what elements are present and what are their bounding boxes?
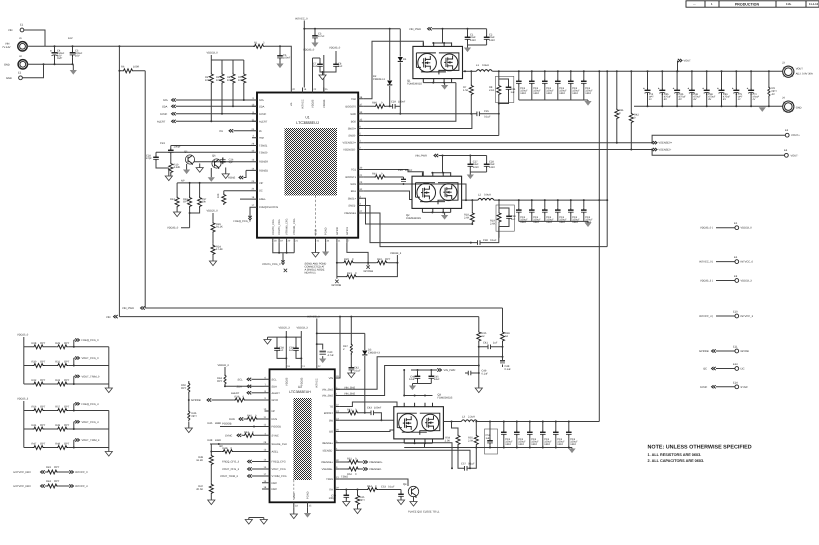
svg-text:OPT: OPT	[64, 424, 70, 427]
svg-text:ISENSE+: ISENSE+	[322, 442, 334, 445]
svg-text:R45: R45	[208, 422, 213, 425]
svg-text:VDD33: VDD33	[323, 99, 326, 108]
svg-text:R51: R51	[347, 458, 352, 461]
svg-text:VSENSE0-: VSENSE0-	[343, 149, 356, 152]
svg-text:SCL: SCL	[163, 99, 169, 102]
svg-text:1210: 1210	[470, 39, 476, 42]
svg-text:FDMS3602S: FDMS3602S	[438, 397, 453, 400]
svg-text:E2: E2	[18, 72, 22, 75]
svg-text:SCL: SCL	[238, 378, 244, 381]
svg-text:E13: E13	[733, 363, 738, 366]
svg-text:VDD33_0: VDD33_0	[303, 49, 315, 52]
svg-text:SNS1-: SNS1-	[348, 205, 356, 208]
svg-text:SDA: SDA	[259, 105, 265, 108]
svg-text:OPT: OPT	[738, 96, 743, 99]
svg-text:E4: E4	[784, 149, 788, 152]
svg-text:1210: 1210	[489, 166, 495, 169]
svg-text:EXTVCC_DRV: EXTVCC_DRV	[14, 471, 32, 474]
svg-text:0.1uF: 0.1uF	[388, 486, 395, 489]
svg-text:SYNC: SYNC	[700, 386, 707, 389]
svg-text:LTC3888EUJ: LTC3888EUJ	[296, 121, 319, 125]
svg-text:GPIO0B: GPIO0B	[191, 399, 201, 402]
svg-text:OPT: OPT	[217, 380, 223, 383]
svg-text:INTVCC_3 ): INTVCC_3 )	[699, 315, 713, 318]
svg-text:C43: C43	[367, 407, 372, 410]
svg-text:100: 100	[217, 193, 220, 198]
svg-text:TSNS: TSNS	[341, 476, 348, 479]
svg-text:VSENSE0+: VSENSE0+	[343, 142, 357, 145]
svg-text:0.1uF: 0.1uF	[484, 116, 491, 119]
svg-text:R40: R40	[247, 415, 252, 418]
svg-text:EXTVCC_DRV: EXTVCC_DRV	[14, 485, 32, 488]
svg-text:VDD25_3: VDD25_3	[279, 327, 291, 330]
svg-text:BG1: BG1	[351, 190, 357, 193]
svg-text:VOUT1_CFG_0: VOUT1_CFG_0	[262, 263, 281, 266]
svg-text:VSENSE0+: VSENSE0+	[369, 461, 383, 464]
svg-text:E10: E10	[733, 311, 738, 314]
svg-text:PGND: PGND	[325, 227, 328, 235]
svg-text:VOUT-: VOUT-	[791, 154, 799, 157]
svg-text:11S.: 11S.	[786, 3, 792, 6]
svg-text:VDD33_3: VDD33_3	[218, 364, 230, 367]
svg-text:11-1-12: 11-1-12	[809, 3, 819, 6]
svg-text:NOTE: UNLESS OTHERWISE SPECIFI: NOTE: UNLESS OTHERWISE SPECIFIED	[648, 445, 752, 451]
svg-text:E3: E3	[785, 129, 789, 132]
svg-text:NP: NP	[272, 410, 276, 413]
svg-text:VTRIM_CFG: VTRIM_CFG	[272, 475, 287, 478]
svg-text:100nF: 100nF	[374, 407, 382, 410]
svg-text:INTVCC_0 ): INTVCC_0 )	[699, 261, 713, 264]
svg-text:OPT: OPT	[54, 480, 60, 483]
svg-text:2.6K: 2.6K	[490, 223, 496, 226]
svg-text:VIN_PWR: VIN_PWR	[122, 307, 134, 310]
svg-text:ITH: ITH	[219, 130, 223, 133]
svg-text:BG0: BG0	[351, 120, 357, 123]
svg-text:VDD33_0: VDD33_0	[167, 227, 179, 230]
svg-text:R44: R44	[367, 485, 372, 488]
svg-text:E5: E5	[734, 222, 738, 225]
svg-text:D1: D1	[403, 58, 407, 61]
svg-text:VOUT_CFG: VOUT_CFG	[272, 468, 286, 471]
svg-text:VSENSE0-: VSENSE0-	[659, 149, 672, 152]
svg-text:0.1uF: 0.1uF	[482, 373, 489, 376]
svg-text:OPT: OPT	[649, 96, 654, 99]
svg-text:OPT: OPT	[181, 387, 187, 390]
svg-text:GPIO0B: GPIO0B	[332, 284, 342, 287]
svg-text:ALERT: ALERT	[259, 120, 268, 123]
svg-text:VOUT: VOUT	[684, 60, 692, 63]
svg-text:R29: R29	[55, 342, 60, 345]
svg-text:100nF: 100nF	[283, 57, 291, 60]
svg-text:GND: GND	[6, 77, 12, 80]
svg-text:0.1uF: 0.1uF	[468, 463, 475, 466]
svg-text:VIN_PWR: VIN_PWR	[444, 369, 456, 372]
svg-text:NP: NP	[181, 180, 185, 183]
svg-text:5pF: 5pF	[229, 161, 234, 164]
svg-text:100nF: 100nF	[398, 101, 406, 104]
svg-text:TG1: TG1	[351, 169, 357, 172]
svg-text:R22: R22	[377, 258, 382, 261]
svg-text:FREQ_CFG_0: FREQ_CFG_0	[82, 339, 100, 342]
svg-text:VDD33_0: VDD33_0	[207, 52, 219, 55]
svg-text:OPT: OPT	[64, 379, 70, 382]
svg-text:VDD33_0: VDD33_0	[329, 47, 341, 50]
svg-text:SHARE_CLK: SHARE_CLK	[272, 443, 288, 446]
svg-text:470uF: 470uF	[753, 96, 760, 99]
svg-text:FREQ/CLK/CFG: FREQ/CLK/CFG	[259, 206, 278, 209]
svg-text:RSNSD: RSNSD	[259, 169, 268, 172]
svg-text:R43: R43	[244, 431, 249, 434]
svg-text:VTRIM0_CFG: VTRIM0_CFG	[286, 219, 289, 235]
svg-text:TG: TG	[329, 406, 333, 409]
svg-text:OPT: OPT	[40, 379, 46, 382]
svg-text:R41: R41	[32, 424, 37, 427]
svg-text:91.2K: 91.2K	[216, 226, 223, 229]
svg-text:1210: 1210	[473, 166, 479, 169]
svg-text:BOOST: BOOST	[324, 412, 333, 415]
svg-text:ALERT: ALERT	[157, 121, 166, 124]
svg-text:CMDSH-3: CMDSH-3	[368, 352, 380, 355]
svg-text:GND: GND	[796, 107, 802, 110]
svg-text:VOUT_TRIM_0: VOUT_TRIM_0	[82, 375, 100, 378]
svg-text:C15: C15	[649, 93, 654, 96]
svg-text:4.7uF: 4.7uF	[328, 354, 335, 357]
svg-text:R48: R48	[208, 439, 213, 442]
svg-text:1uF: 1uF	[511, 91, 516, 94]
svg-text:VDD33_0 ): VDD33_0 )	[700, 227, 713, 230]
svg-text:1uF: 1uF	[486, 437, 491, 440]
svg-text:1.5K: 1.5K	[463, 89, 469, 92]
svg-text:VSENSE0+: VSENSE0+	[659, 142, 673, 145]
svg-text:VOUT_TRIM_3: VOUT_TRIM_3	[220, 475, 238, 478]
svg-text:R23: R23	[46, 466, 51, 469]
svg-text:TSNS: TSNS	[326, 478, 333, 481]
svg-text:PGOOB: PGOOB	[222, 423, 232, 426]
svg-text:VIN_SNS: VIN_SNS	[344, 393, 355, 396]
svg-text:1uF: 1uF	[511, 218, 516, 221]
svg-text:SYNC: SYNC	[225, 434, 232, 437]
svg-text:SW1: SW1	[350, 183, 356, 186]
svg-text:PGND: PGND	[307, 491, 310, 499]
svg-text:RSNS: RSNS	[228, 177, 235, 180]
svg-text:C74: C74	[753, 93, 758, 96]
svg-text:R33: R33	[55, 379, 60, 382]
svg-text:VDD33_0: VDD33_0	[741, 227, 753, 230]
svg-text:SDA: SDA	[162, 106, 168, 109]
svg-text:R24: R24	[46, 480, 51, 483]
svg-text:16V: 16V	[75, 55, 80, 58]
svg-text:TSNS1: TSNS1	[259, 145, 268, 148]
svg-text:C57: C57	[461, 463, 466, 466]
svg-text:VSENSE1: VSENSE1	[344, 212, 357, 215]
svg-text:Q5: Q5	[184, 151, 188, 154]
svg-text:INTVCC_0: INTVCC_0	[75, 471, 88, 474]
svg-text:SNS1+: SNS1+	[348, 197, 357, 200]
svg-text:VDD25: VDD25	[312, 99, 315, 108]
svg-text:VDD33: VDD33	[300, 377, 303, 386]
svg-text:SCL: SCL	[259, 99, 265, 102]
svg-text:OPT: OPT	[360, 499, 366, 502]
svg-text:VOUT_CFG_3: VOUT_CFG_3	[82, 421, 100, 424]
svg-text:Rb1: Rb1	[372, 173, 377, 176]
svg-text:BG: BG	[329, 431, 333, 434]
svg-text:R49: R49	[55, 424, 60, 427]
svg-text:Q4: Q4	[403, 483, 407, 486]
svg-text:2.1K: 2.1K	[489, 89, 495, 92]
svg-text:LTC3883EUH: LTC3883EUH	[289, 390, 311, 394]
svg-text:SNS0+: SNS0+	[348, 128, 357, 131]
svg-text:I2C: I2C	[219, 445, 223, 448]
svg-text:10k: 10k	[238, 79, 243, 82]
svg-text:SYNC: SYNC	[272, 434, 279, 437]
svg-text:R6: R6	[121, 66, 125, 69]
svg-text:432K: 432K	[215, 439, 221, 442]
svg-text:DNC: DNC	[272, 482, 278, 485]
svg-text:INTVCC_3: INTVCC_3	[307, 316, 320, 319]
svg-text:ALERT: ALERT	[231, 392, 240, 395]
svg-text:R41: R41	[347, 408, 352, 411]
svg-text:RSNSR: RSNSR	[259, 161, 268, 164]
svg-text:17.4K: 17.4K	[216, 248, 223, 251]
svg-text:ALERT: ALERT	[272, 392, 281, 395]
svg-text:SYNC: SYNC	[741, 386, 748, 389]
svg-text:12uF: 12uF	[409, 378, 415, 381]
svg-text:ASEL: ASEL	[259, 198, 266, 201]
svg-text:VIN_SNS: VIN_SNS	[322, 395, 333, 398]
svg-text:1uF: 1uF	[313, 65, 318, 68]
svg-text:OPT: OPT	[64, 406, 70, 409]
svg-text:OPT: OPT	[192, 415, 198, 418]
svg-text:vin: vin	[290, 102, 293, 106]
svg-text:VTRIM1_CFG: VTRIM1_CFG	[293, 219, 296, 235]
svg-text:OPT: OPT	[40, 406, 46, 409]
svg-text:SC: SC	[259, 190, 263, 193]
svg-text:C29: C29	[391, 101, 396, 104]
svg-text:VIP: VIP	[259, 182, 263, 185]
svg-text:4.7uF: 4.7uF	[318, 35, 325, 38]
svg-text:I2C: I2C	[703, 368, 707, 371]
svg-text:INTVCC_3: INTVCC_3	[741, 315, 754, 318]
svg-text:SW0: SW0	[350, 113, 356, 116]
svg-text:SYNC: SYNC	[259, 113, 266, 116]
svg-text:GPIO0B: GPIO0B	[699, 350, 709, 353]
svg-text:OPT: OPT	[54, 466, 60, 469]
svg-text:VDD33_3: VDD33_3	[297, 327, 309, 330]
svg-text:SNS0-: SNS0-	[348, 135, 356, 138]
svg-text:2.6K: 2.6K	[464, 217, 470, 220]
svg-text:RUN: RUN	[272, 418, 278, 421]
svg-text:0.9uH: 0.9uH	[482, 64, 489, 67]
svg-text:R48: R48	[55, 443, 60, 446]
svg-text:CMDSH-3: CMDSH-3	[373, 78, 385, 81]
svg-text:VOUT1_CFG: VOUT1_CFG	[278, 219, 281, 235]
svg-text:2.2uH: 2.2uH	[468, 416, 475, 419]
svg-text:4.32K: 4.32K	[174, 166, 181, 169]
svg-text:VIN_PWR: VIN_PWR	[409, 28, 421, 31]
svg-text:SYNC: SYNC	[160, 113, 167, 116]
svg-text:GPIO1: GPIO1	[346, 227, 349, 235]
svg-text:VDD33_3 ): VDD33_3 )	[700, 280, 713, 283]
svg-text:OPT: OPT	[64, 361, 70, 364]
svg-text:16V: 16V	[68, 37, 73, 40]
svg-text:2.0K: 2.0K	[468, 440, 474, 443]
svg-text:Q6: Q6	[212, 155, 216, 158]
svg-text:R31: R31	[55, 361, 60, 364]
svg-text:0.1uF: 0.1uF	[354, 370, 361, 373]
svg-text:PRODUCTION: PRODUCTION	[735, 2, 760, 6]
svg-text:12uF: 12uF	[434, 378, 440, 381]
svg-text:1. ALL RESISTORS ARE 0603.: 1. ALL RESISTORS ARE 0603.	[648, 453, 702, 457]
svg-text:100pF: 100pF	[329, 497, 337, 500]
svg-text:C75: C75	[738, 93, 743, 96]
svg-text:E6: E6	[734, 256, 738, 259]
svg-text:VDD25_3: VDD25_3	[17, 398, 29, 401]
svg-text:R1: R1	[254, 42, 258, 45]
svg-text:VOUT_CFG_0: VOUT_CFG_0	[82, 357, 100, 360]
svg-text:1210: 1210	[489, 39, 495, 42]
svg-text:VIN: VIN	[329, 377, 333, 380]
svg-text:VOUT0_CFG: VOUT0_CFG	[272, 219, 275, 235]
svg-text:4V: 4V	[738, 98, 741, 101]
svg-text:VDD33_3: VDD33_3	[741, 280, 753, 283]
svg-text:PLACE Q15 CLOSE TO L1: PLACE Q15 CLOSE TO L1	[408, 511, 440, 514]
svg-text:1uF: 1uF	[279, 349, 284, 352]
svg-text:C41: C41	[483, 342, 488, 345]
svg-text:VOUT_CFG_3: VOUT_CFG_3	[222, 468, 240, 471]
svg-text:SCL: SCL	[272, 378, 278, 381]
svg-text:VIN: VIN	[106, 316, 110, 319]
svg-text:1uF: 1uF	[289, 349, 294, 352]
svg-text:10k: 10k	[205, 79, 210, 82]
svg-text:VDD25_0: VDD25_0	[17, 334, 29, 337]
svg-text:FREQ_CFG_3: FREQ_CFG_3	[82, 403, 100, 406]
svg-text:R28: R28	[32, 342, 37, 345]
svg-text:0.9uH: 0.9uH	[484, 193, 491, 196]
svg-text:R49: R49	[223, 447, 228, 450]
svg-text:GND: GND	[293, 493, 296, 499]
svg-text:GPIO1B: GPIO1B	[364, 270, 374, 273]
svg-text:OPT: OPT	[40, 361, 46, 364]
svg-text:U1: U1	[305, 116, 309, 120]
svg-text:1uF: 1uF	[493, 342, 498, 345]
svg-text:499K: 499K	[215, 422, 221, 425]
svg-text:TSNS0: TSNS0	[259, 151, 268, 154]
svg-text:R32: R32	[32, 379, 37, 382]
svg-text:0.1uF: 0.1uF	[505, 368, 512, 371]
svg-text:R20: R20	[344, 258, 349, 261]
svg-text:10k: 10k	[216, 79, 221, 82]
svg-text:INTVCC_0: INTVCC_0	[295, 18, 308, 21]
svg-text:VIN: VIN	[8, 29, 12, 32]
svg-text:C35: C35	[484, 110, 489, 113]
svg-text:VSENSE-: VSENSE-	[322, 468, 334, 471]
svg-text:GND: GND	[315, 229, 318, 235]
svg-text:4V: 4V	[649, 98, 652, 101]
svg-text:GPIO0: GPIO0	[336, 227, 339, 235]
svg-text:OPT: OPT	[64, 342, 70, 345]
svg-text:TG0: TG0	[351, 98, 357, 101]
svg-text:R30: R30	[32, 361, 37, 364]
svg-text:INTVCC: INTVCC	[302, 99, 305, 109]
svg-text:GND: GND	[4, 63, 10, 66]
svg-text:R57: R57	[55, 406, 60, 409]
svg-text:E11: E11	[733, 346, 738, 349]
svg-text:OPT: OPT	[40, 443, 46, 446]
svg-text:100R: 100R	[133, 66, 139, 69]
svg-text:C20: C20	[398, 169, 403, 172]
svg-text:NEAR U1: NEAR U1	[305, 272, 317, 275]
svg-text:I2C: I2C	[741, 368, 745, 371]
svg-text:PGOOD: PGOOD	[272, 426, 282, 429]
svg-text:16.2K: 16.2K	[196, 459, 203, 462]
svg-text:ADJ. 0.9V 30A: ADJ. 0.9V 30A	[796, 73, 813, 76]
svg-text:DNC: DNC	[272, 488, 278, 491]
svg-text:2.0K: 2.0K	[445, 440, 451, 443]
svg-text:0.1uF: 0.1uF	[490, 239, 497, 242]
svg-text:INTVCC: INTVCC	[315, 378, 318, 388]
svg-text:C53: C53	[381, 486, 386, 489]
svg-text:ASEL: ASEL	[272, 451, 279, 454]
svg-text:VSENSE+: VSENSE+	[321, 461, 334, 464]
svg-text:—: —	[693, 3, 696, 6]
svg-text:Rb0: Rb0	[372, 102, 377, 105]
svg-text:100nF: 100nF	[405, 169, 413, 172]
svg-text:R56: R56	[32, 406, 37, 409]
svg-text:10k: 10k	[202, 201, 207, 204]
svg-text:E14: E14	[733, 381, 738, 384]
svg-text:1uF: 1uF	[338, 65, 343, 68]
svg-text:R21: R21	[347, 272, 352, 275]
svg-text:FREQ_CFG_0: FREQ_CFG_0	[234, 220, 252, 223]
svg-text:C23: C23	[160, 142, 165, 145]
svg-text:R38: R38	[235, 396, 240, 399]
svg-text:100pF: 100pF	[174, 146, 182, 149]
svg-text:OPT: OPT	[64, 443, 70, 446]
svg-text:VDD33_3: VDD33_3	[390, 252, 402, 255]
svg-text:BOOST1: BOOST1	[345, 176, 356, 179]
svg-text:OPT: OPT	[40, 424, 46, 427]
svg-text:FDMS3602S: FDMS3602S	[406, 217, 421, 220]
svg-text:E1: E1	[20, 24, 24, 27]
svg-text:47pF: 47pF	[146, 157, 152, 160]
svg-text:BOOST0: BOOST0	[345, 105, 356, 108]
svg-text:FDMS3602S: FDMS3602S	[407, 83, 422, 86]
svg-text:VIN_SNS: VIN_SNS	[322, 388, 333, 391]
svg-text:VDD25_0: VDD25_0	[207, 210, 219, 213]
svg-text:VIN_SNS: VIN_SNS	[344, 386, 355, 389]
svg-text:OPT: OPT	[385, 258, 391, 261]
svg-text:VOUT: VOUT	[796, 68, 804, 71]
svg-text:20.5K: 20.5K	[196, 488, 203, 491]
svg-text:VOUT+: VOUT+	[791, 134, 800, 137]
svg-text:OPT: OPT	[183, 201, 189, 204]
svg-text:E9: E9	[734, 275, 738, 278]
svg-text:ITH: ITH	[329, 489, 333, 492]
svg-text:SVP: SVP	[57, 57, 62, 60]
svg-text:INTVCC_3: INTVCC_3	[75, 485, 88, 488]
svg-text:SDA: SDA	[272, 385, 278, 388]
svg-text:10k: 10k	[227, 79, 232, 82]
svg-text:GPIO: GPIO	[272, 399, 279, 402]
svg-text:FREQ_CFG_3: FREQ_CFG_3	[222, 461, 240, 464]
svg-text:VOUT_TRIM_3: VOUT_TRIM_3	[82, 439, 100, 442]
svg-text:OPT: OPT	[40, 342, 46, 345]
svg-text:FREQ_CFG: FREQ_CFG	[272, 461, 286, 464]
svg-text:R47: R47	[32, 443, 37, 446]
svg-text:rnsp: rnsp	[259, 137, 265, 140]
svg-text:RUN: RUN	[229, 418, 235, 421]
svg-text:INTVCC_0: INTVCC_0	[741, 261, 754, 264]
